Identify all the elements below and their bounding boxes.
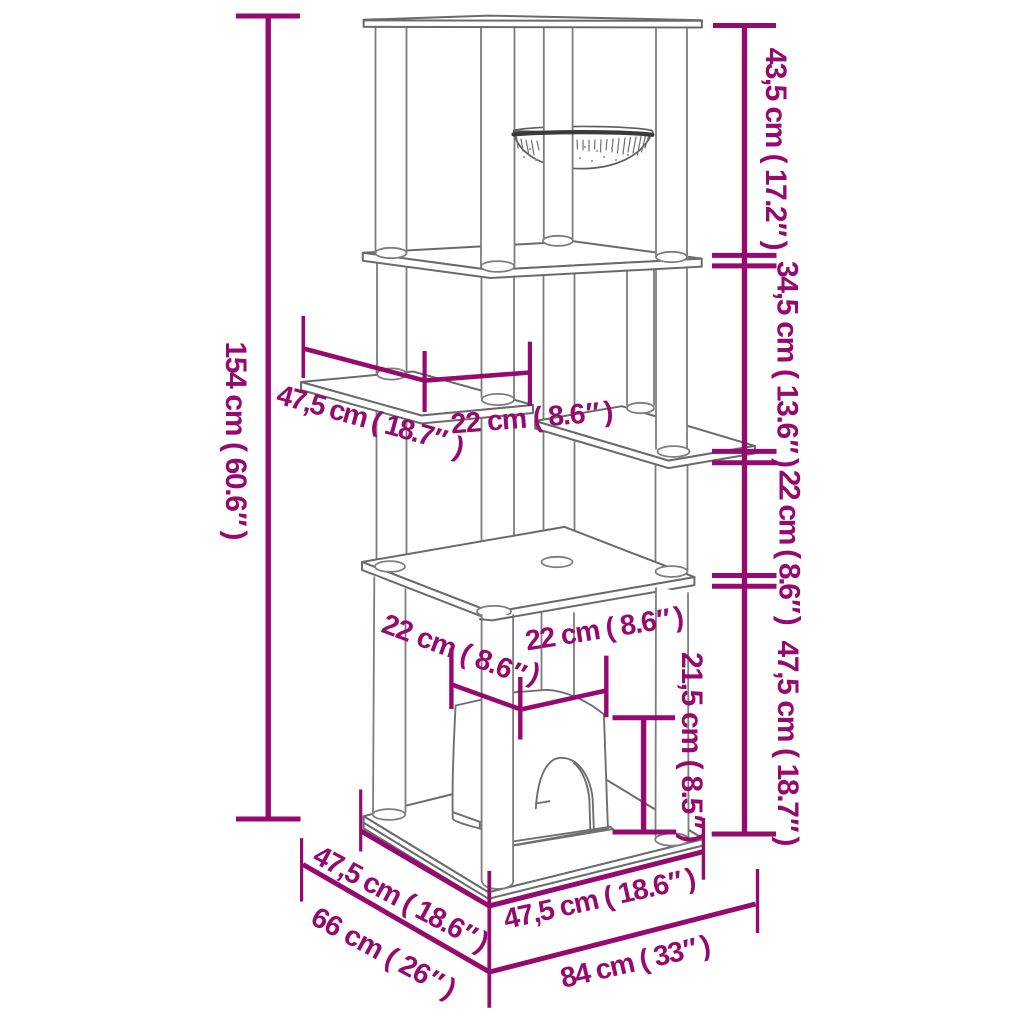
svg-text:21,5 cm ( 8.5″ ): 21,5 cm ( 8.5″ ) bbox=[675, 652, 708, 843]
svg-text:34,5 cm ( 13.6″ ): 34,5 cm ( 13.6″ ) bbox=[771, 261, 804, 468]
svg-text:22 cm ( 8.6″ ): 22 cm ( 8.6″ ) bbox=[773, 470, 806, 626]
svg-text:43,5 cm ( 17.2″ ): 43,5 cm ( 17.2″ ) bbox=[759, 48, 792, 251]
svg-text:154 cm ( 60.6″ ): 154 cm ( 60.6″ ) bbox=[219, 342, 252, 541]
svg-text:47,5 cm ( 18.7″ ): 47,5 cm ( 18.7″ ) bbox=[771, 641, 804, 847]
